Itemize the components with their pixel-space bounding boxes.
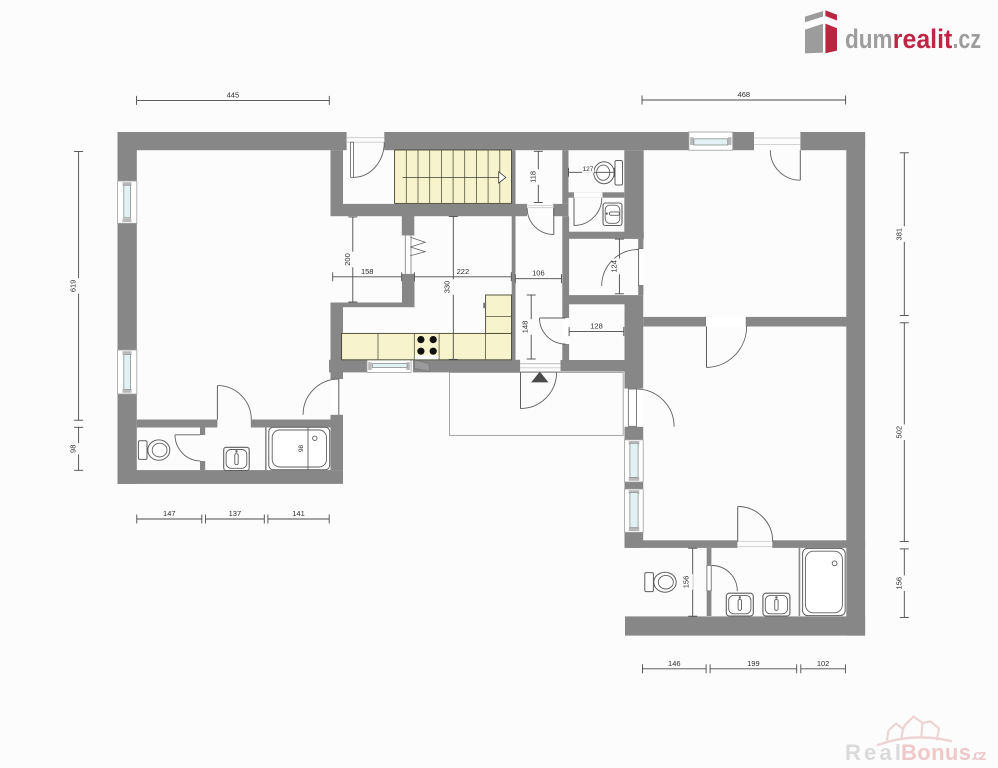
svg-text:.cz: .cz: [972, 748, 987, 764]
svg-text:502: 502: [894, 426, 903, 439]
svg-text:156: 156: [682, 576, 691, 589]
svg-text:127: 127: [583, 166, 594, 173]
svg-text:106: 106: [532, 269, 545, 278]
svg-text:Bonus: Bonus: [901, 740, 971, 765]
svg-text:330: 330: [443, 281, 452, 294]
svg-text:445: 445: [227, 90, 240, 99]
svg-text:98: 98: [69, 445, 78, 453]
svg-text:199: 199: [747, 659, 760, 668]
svg-text:147: 147: [163, 509, 176, 518]
svg-text:141: 141: [292, 509, 305, 518]
svg-text:156: 156: [894, 577, 903, 590]
svg-text:158: 158: [361, 267, 374, 276]
svg-text:148: 148: [521, 321, 530, 334]
svg-text:146: 146: [668, 659, 681, 668]
svg-text:124: 124: [609, 260, 618, 273]
svg-text:200: 200: [343, 253, 352, 266]
svg-text:137: 137: [229, 509, 242, 518]
svg-text:118: 118: [528, 171, 537, 183]
svg-text:.cz: .cz: [953, 24, 982, 54]
svg-text:realit: realit: [893, 24, 953, 54]
svg-text:dum: dum: [845, 24, 893, 54]
svg-text:381: 381: [894, 228, 903, 241]
svg-text:98: 98: [298, 445, 305, 453]
svg-text:619: 619: [69, 280, 78, 293]
svg-text:128: 128: [590, 322, 603, 331]
svg-text:222: 222: [457, 267, 470, 276]
svg-text:102: 102: [817, 659, 830, 668]
svg-text:468: 468: [738, 90, 751, 99]
